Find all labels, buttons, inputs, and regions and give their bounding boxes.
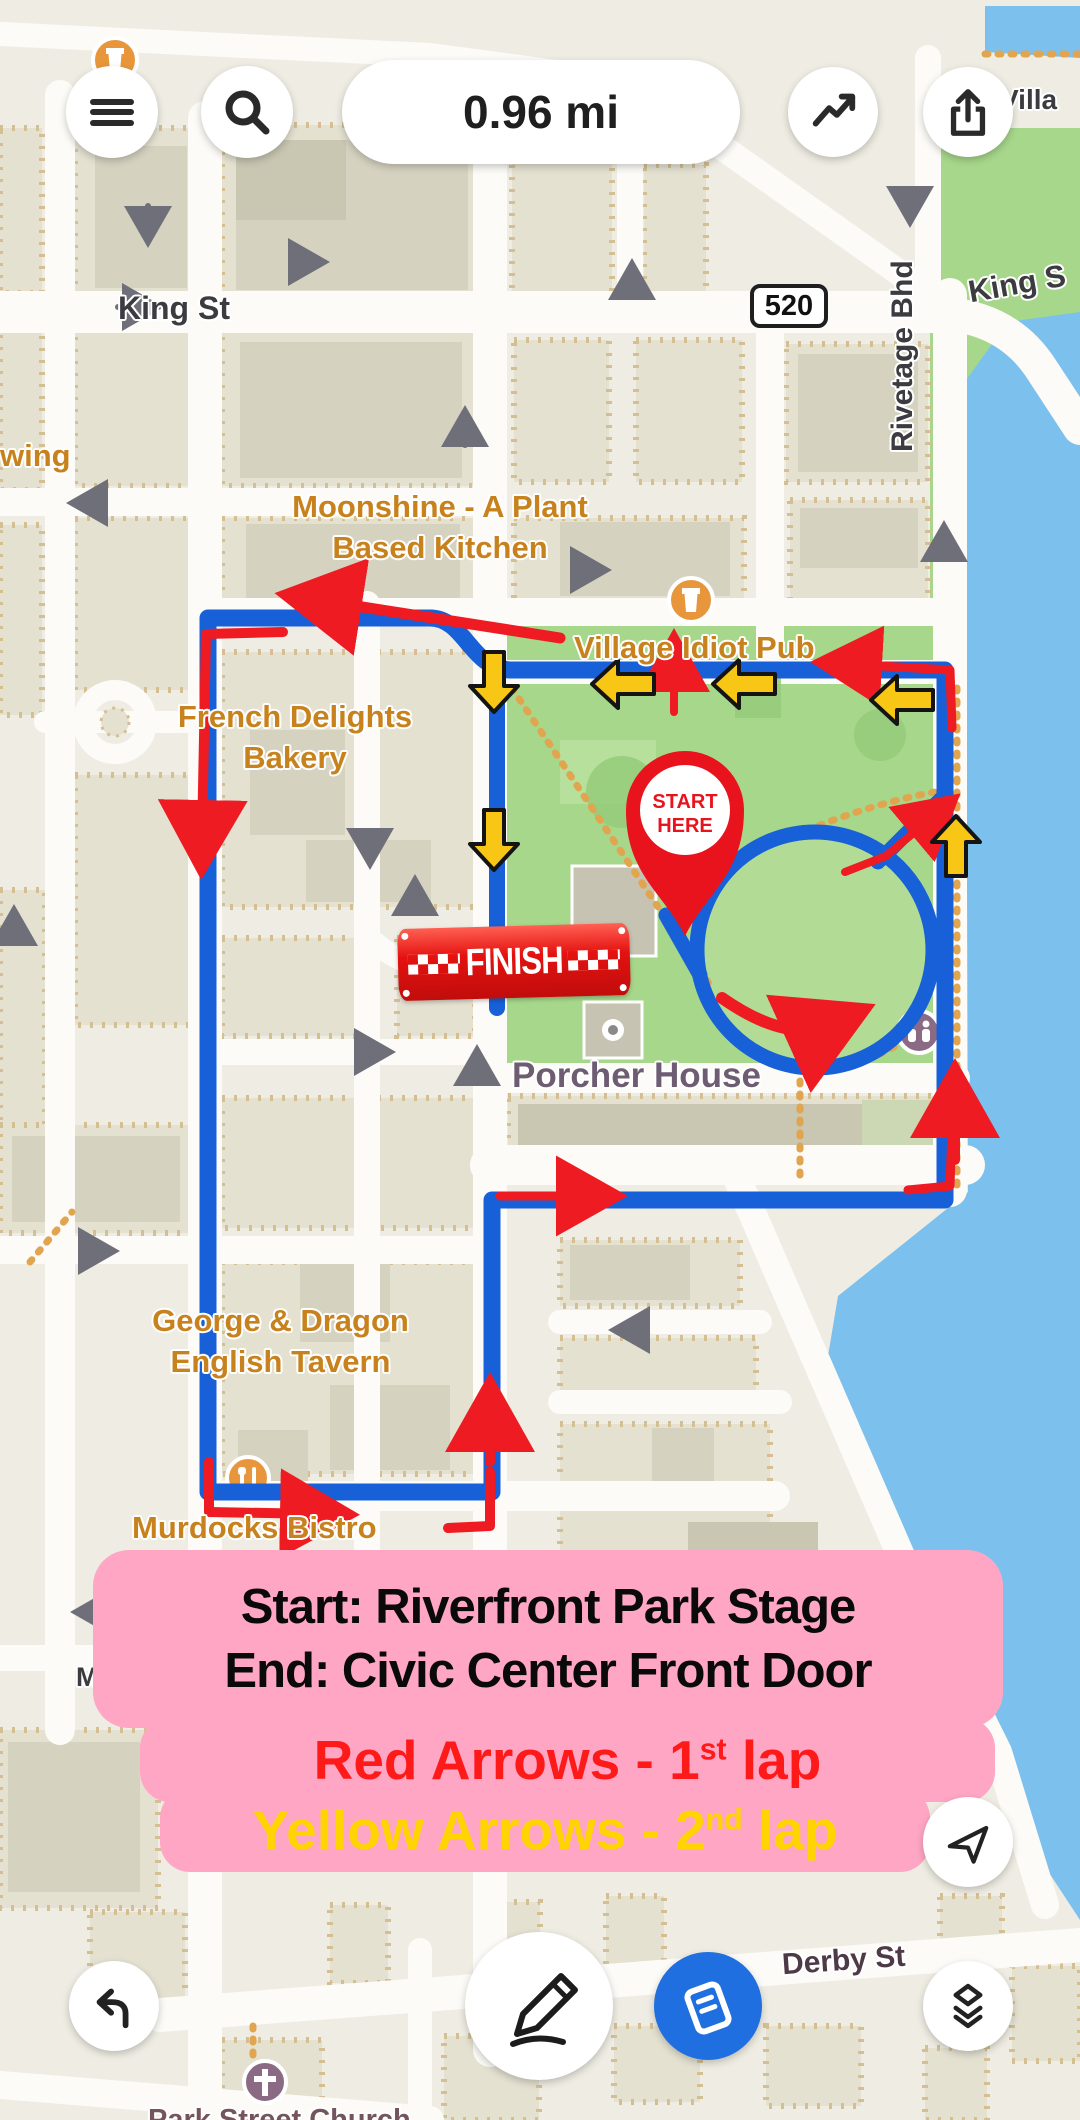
poi-label-moonshine: Moonshine - A Plant Based Kitchen [245,486,635,568]
distance-pill[interactable]: 0.96 mi [342,60,740,164]
info-box-yellow-arrows: Yellow Arrows - 2nd lap [160,1788,930,1872]
checker-left [408,953,461,974]
street-label-wing: wing [0,438,71,474]
church-icon [244,2061,286,2103]
locate-button[interactable] [923,1797,1013,1887]
trending-icon [806,85,860,139]
menu-button[interactable] [66,66,158,158]
poi-label-village-idiot: Village Idiot Pub [574,630,815,666]
stats-button[interactable] [788,67,878,157]
search-button[interactable] [201,66,293,158]
poi-label-george-dragon: George & Dragon English Tavern [128,1300,433,1382]
poi-label-murdocks: Murdocks Bistro [132,1510,377,1546]
active-route-button[interactable] [654,1952,762,2060]
info-line-end: End: Civic Center Front Door [224,1639,871,1703]
street-label-rivetage: Rivetage Bhd [886,196,920,452]
finish-banner-label: FINISH [465,939,563,985]
back-button[interactable] [69,1961,159,2051]
paper-plane-icon [940,1814,996,1870]
start-pin-line1: START [652,791,717,813]
app-screen: START HERE King St King S Rivetage Bhd D… [0,0,1080,2120]
search-icon [219,84,275,140]
layers-icon [939,1977,997,2035]
share-button[interactable] [923,67,1013,157]
distance-value: 0.96 mi [463,85,619,139]
info-line-start: Start: Riverfront Park Stage [241,1575,856,1639]
draw-route-button[interactable] [465,1932,613,2080]
info-line-yellow: Yellow Arrows - 2nd lap [252,1798,837,1862]
layers-button[interactable] [923,1961,1013,2051]
pencil-icon [479,1946,599,2066]
hamburger-icon [90,94,134,130]
info-box-start-end: Start: Riverfront Park Stage End: Civic … [93,1550,1003,1728]
poi-label-french-delights: French Delights Bakery [150,696,440,778]
route-card-icon [654,1952,762,2060]
poi-label-porcher-house: Porcher House [512,1056,761,1096]
info-line-red: Red Arrows - 1st lap [314,1728,822,1792]
checker-right [568,949,621,970]
highway-shield-520: 520 [750,284,828,328]
beer-icon [669,578,713,622]
start-pin-line2: HERE [657,815,713,837]
share-icon [941,85,995,139]
finish-banner: FINISH [397,923,631,1001]
street-label-partial-bottom: Park Street Church [148,2104,411,2120]
undo-arrow-icon [87,1979,141,2033]
street-label-king-st: King St [118,290,230,327]
